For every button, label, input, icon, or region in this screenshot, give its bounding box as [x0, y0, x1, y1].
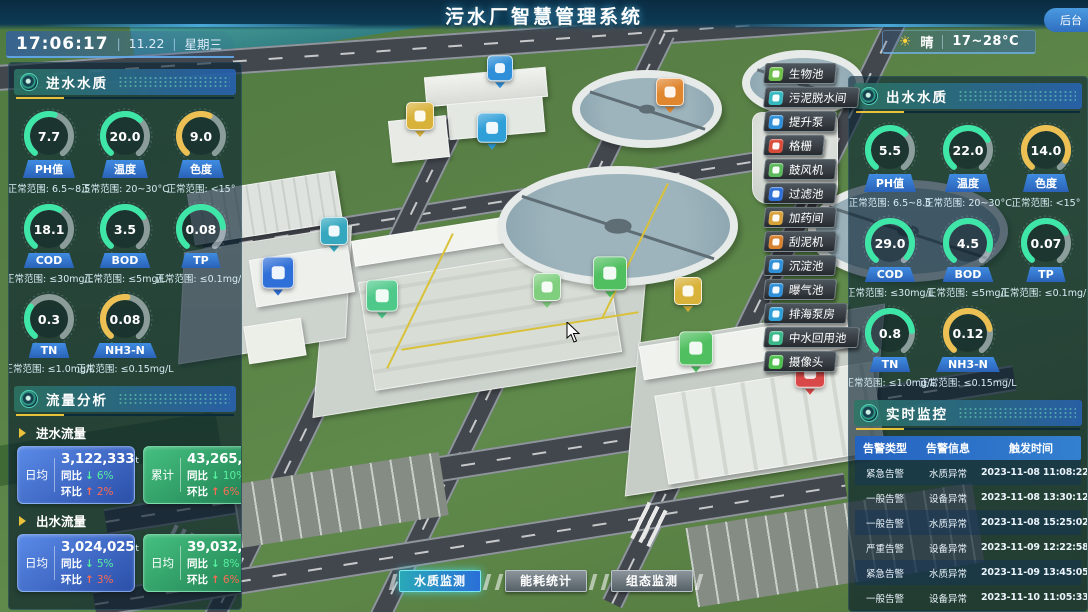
flow-card: 日均3,122,333t同比↓6%环比↑2% [17, 446, 135, 504]
gauge-range: 正常范围: <15° [1011, 195, 1080, 209]
lift-pump-marker[interactable] [477, 113, 507, 155]
flow-card-tag: 日均 [151, 555, 174, 571]
outlet-gauges: 5.5PH值正常范围: 6.5~8.522.0温度正常范围: 20~30°C14… [849, 113, 1087, 394]
flow-delta-row: 同比↓5% [61, 556, 127, 571]
facility-label: 污泥脱水间 [788, 90, 847, 106]
facility-button-lift-pump[interactable]: 提升泵 [763, 111, 837, 132]
alarm-time: 2023-11-08 11:08:22 [981, 467, 1088, 478]
gauge-range: 正常范围: ≤30mg/L [8, 271, 93, 285]
gauge-dial: 4.5 [939, 214, 997, 272]
marker-pointer [665, 107, 675, 118]
gauge-nh3n: 0.08NH3-N正常范围: ≤0.15mg/L [87, 290, 163, 375]
flow-card: 日均3,024,025t同比↓5%环比↑3% [17, 534, 135, 592]
col-trigger-time: 触发时间 [981, 440, 1081, 456]
gauge-value: 0.08 [96, 290, 154, 348]
gauge-value: 0.3 [20, 290, 78, 348]
gauge-label: TP [1026, 267, 1066, 282]
mud-scraper-icon [768, 235, 783, 249]
delta-label: 环比 [187, 572, 208, 587]
gauge-value: 0.08 [172, 200, 230, 258]
facility-button-bio-pool[interactable]: 生物池 [763, 63, 837, 84]
facility-button-camera[interactable]: 摄像头 [763, 351, 837, 372]
flow-delta-row: 同比↓10% [187, 468, 242, 483]
gauge-dial: 0.3 [20, 290, 78, 348]
gauge-label: PH值 [23, 160, 75, 178]
alarm-type: 紧急告警 [855, 466, 915, 480]
facility-label: 鼓风机 [788, 162, 824, 178]
alarm-type: 紧急告警 [855, 566, 915, 580]
gauge-label: TN [870, 357, 911, 372]
delta-value: 2% [97, 486, 114, 498]
flow-delta-row: 环比↑3% [61, 572, 127, 587]
marker-icon [533, 273, 561, 301]
bottom-tabs: 水质监测能耗统计组态监测 [399, 570, 693, 592]
flow-delta-row: 环比↑2% [61, 484, 127, 499]
arrow-down-icon: ↓ [211, 558, 220, 570]
blower-marker[interactable] [406, 102, 434, 142]
arrow-down-icon: ↓ [85, 558, 94, 570]
marker-icon [477, 113, 507, 143]
marker-pointer [415, 131, 425, 142]
gauge-range: 正常范围: ≤5mg/L [84, 271, 166, 285]
target-icon [860, 87, 878, 105]
gauge-label: 色度 [1023, 174, 1069, 192]
arrow-up-icon: ↑ [211, 486, 220, 498]
alarm-info: 设备异常 [915, 591, 981, 605]
gauge-ph: 5.5PH值正常范围: 6.5~8.5 [851, 121, 929, 209]
divider [180, 546, 181, 580]
section-title: 进水水质 [46, 72, 108, 92]
page-title: 污水厂智慧管理系统 [445, 2, 643, 29]
target-icon [20, 73, 38, 91]
bio-pool-icon [768, 67, 783, 81]
weekday-text: 星期三 [184, 34, 222, 53]
section-header: 进水水质 [14, 69, 236, 95]
sun-icon: ☀ [899, 34, 912, 50]
flow-value: 3,122,333t [61, 451, 127, 467]
delta-label: 环比 [61, 572, 82, 587]
delta-label: 同比 [61, 468, 82, 483]
gauge-label: 色度 [178, 160, 224, 178]
dashboard: 污水厂智慧管理系统 17:06:17 | 11.22 | 星期三 ☀ 晴 17~… [0, 0, 1088, 612]
target-icon [20, 390, 38, 408]
marker-pointer [805, 389, 815, 400]
dots-decoration [118, 393, 230, 405]
mud-scraper-marker[interactable] [656, 78, 684, 118]
marker-pointer [377, 313, 387, 324]
gauge-label: COD [24, 253, 75, 268]
flow-card-values: 3,122,333t同比↓6%环比↑2% [61, 451, 127, 499]
facility-button-sedimentation-pool[interactable]: 沉淀池 [763, 255, 837, 276]
facility-label: 加药间 [788, 210, 824, 226]
gauge-temp: 20.0温度正常范围: 20~30°C [87, 107, 163, 195]
gauge-range: 正常范围: 6.5~8.5 [8, 181, 90, 195]
left-panel: 进水水质 7.7PH值正常范围: 6.5~8.520.0温度正常范围: 20~3… [8, 62, 242, 610]
marker-pointer [683, 306, 693, 317]
gauge-value: 4.5 [939, 214, 997, 272]
gauge-range: 正常范围: 20~30°C [81, 181, 169, 195]
facility-button-aeration-pool[interactable]: 曝气池 [763, 279, 837, 300]
gauge-bod: 4.5BOD正常范围: ≤5mg/L [929, 214, 1007, 299]
alarm-table: 告警类型 告警信息 触发时间 紧急告警水质异常2023-11-08 11:08:… [855, 436, 1081, 612]
marker-pointer [487, 144, 497, 155]
flow-card: 日均39,032,128t同比↓8%环比↑6% [143, 534, 242, 592]
gauge-tp: 0.08TP正常范围: ≤0.1mg/L [163, 200, 239, 285]
underline [16, 97, 234, 99]
section-title: 流量分析 [46, 389, 108, 409]
facility-label: 提升泵 [788, 114, 824, 130]
filter-pool-icon [768, 187, 783, 201]
gauge-dial: 7.7 [20, 107, 78, 165]
gauge-label: NH3-N [93, 343, 157, 358]
gauge-range: 正常范围: ≤0.1mg/L [155, 271, 242, 285]
delta-value: 6% [97, 470, 114, 482]
section-header: 实时监控 [854, 400, 1082, 426]
gauge-dial: 3.5 [96, 200, 154, 258]
divider [54, 458, 55, 492]
col-alarm-info: 告警信息 [915, 440, 981, 456]
tab-energy-statistics[interactable]: 能耗统计 [505, 570, 587, 592]
reclaimed-water-pool-icon [768, 331, 783, 345]
alarm-type: 一般告警 [855, 516, 915, 530]
flow-card-values: 3,024,025t同比↓5%环比↑3% [61, 539, 127, 587]
gauge-label: 温度 [102, 160, 148, 178]
alarm-row: 紧急告警水质异常2023-11-09 13:45:05 [855, 560, 1081, 585]
gauge-temp: 22.0温度正常范围: 20~30°C [929, 121, 1007, 209]
flow-card-tag: 累计 [151, 467, 174, 483]
gauge-tp: 0.07TP正常范围: ≤0.1mg/L [1007, 214, 1085, 299]
camera-marker-1[interactable] [593, 256, 627, 302]
flow-card-values: 43,265,225t同比↓10%环比↑6% [187, 451, 242, 499]
alarm-info: 设备异常 [915, 491, 981, 505]
gauge-label: NH3-N [936, 357, 1000, 372]
facility-button-filter-pool[interactable]: 过滤池 [763, 183, 837, 204]
gauge-dial: 0.08 [96, 290, 154, 348]
flow-value: 43,265,225t [187, 451, 242, 467]
facility-button-dosing-room[interactable]: 加药间 [763, 207, 837, 228]
flow-group-label: 出水流量 [19, 511, 231, 530]
blower-icon [768, 163, 783, 177]
gauge-label: PH值 [864, 174, 916, 192]
gauge-dial: 0.07 [1017, 214, 1075, 272]
marker-pointer [329, 246, 339, 257]
sea-discharge-pump-house-icon [768, 307, 783, 321]
flow-unit: t [135, 456, 138, 466]
tab-water-quality-monitoring[interactable]: 水质监测 [399, 570, 481, 592]
facility-button-sludge-dewatering-room[interactable]: 污泥脱水间 [763, 87, 860, 108]
marker-pointer [605, 291, 615, 302]
marker-icon [366, 280, 398, 312]
facility-label: 格栅 [788, 138, 813, 154]
flow-card-tag: 日均 [25, 467, 48, 483]
section-title: 实时监控 [886, 403, 948, 423]
facility-label: 曝气池 [788, 282, 824, 298]
gauge-label: TP [181, 253, 221, 268]
sedimentation-pool-icon [768, 259, 783, 273]
gauge-label: BOD [100, 253, 151, 268]
delta-label: 同比 [187, 556, 208, 571]
gauge-dial: 22.0 [939, 121, 997, 179]
arrow-down-icon: ↓ [85, 470, 94, 482]
marker-icon [320, 217, 348, 245]
flow-groups: 进水流量日均3,122,333t同比↓6%环比↑2%累计43,265,225t同… [9, 423, 241, 592]
delta-label: 同比 [187, 468, 208, 483]
gauge-value: 0.12 [939, 304, 997, 362]
flow-delta-row: 环比↑6% [187, 484, 242, 499]
flow-card: 累计43,265,225t同比↓10%环比↑6% [143, 446, 242, 504]
marker-pointer [691, 366, 701, 377]
dosing-room-icon [768, 211, 783, 225]
facility-button-panel: 生物池污泥脱水间提升泵格栅鼓风机过滤池加药间刮泥机沉淀池曝气池排海泵房中水回用池… [764, 63, 859, 372]
gauge-dial: 0.12 [939, 304, 997, 362]
separator: | [117, 37, 121, 51]
gauge-label: TN [29, 343, 70, 358]
alarm-row: 紧急告警水质异常2023-11-08 11:08:22 [855, 460, 1081, 485]
alarm-row: 一般告警设备异常2023-11-08 13:30:12 [855, 485, 1081, 510]
gauge-range: 正常范围: <15° [166, 181, 235, 195]
flow-group-label: 进水流量 [19, 423, 231, 442]
section-title: 出水水质 [886, 86, 948, 106]
delta-value: 10% [223, 470, 242, 482]
alarm-table-header: 告警类型 告警信息 触发时间 [855, 436, 1081, 460]
delta-value: 5% [97, 558, 114, 570]
underline [856, 111, 1080, 113]
section-outlet-quality: 出水水质 [854, 83, 1082, 113]
gauge-dial: 5.5 [861, 121, 919, 179]
marker-icon [674, 277, 702, 305]
divider [942, 35, 943, 49]
marker-pointer [495, 82, 505, 93]
gauge-value: 29.0 [861, 214, 919, 272]
flow-card-tag: 日均 [25, 555, 48, 571]
marker-icon [262, 257, 294, 289]
flow-group-label-text: 出水流量 [36, 511, 86, 530]
alarm-time: 2023-11-08 15:25:02 [981, 517, 1088, 528]
facility-label: 排海泵房 [788, 306, 836, 322]
gauge-label: COD [865, 267, 916, 282]
delta-label: 环比 [61, 484, 82, 499]
underline [856, 428, 1080, 430]
gauge-range: 正常范围: ≤0.15mg/L [919, 375, 1016, 389]
marker-icon [656, 78, 684, 106]
alarm-info: 水质异常 [915, 566, 981, 580]
reclaimed-water-marker[interactable] [366, 280, 398, 324]
flow-value: 39,032,128t [187, 539, 242, 555]
gauge-range: 正常范围: ≤0.15mg/L [76, 361, 173, 375]
facility-button-grille[interactable]: 格栅 [763, 135, 825, 156]
backend-button[interactable]: 后台 [1044, 8, 1088, 32]
alarm-time: 2023-11-09 13:45:05 [981, 567, 1088, 578]
grille-icon [768, 139, 783, 153]
gauge-ph: 7.7PH值正常范围: 6.5~8.5 [11, 107, 87, 195]
triangle-icon [19, 516, 31, 526]
section-inlet-quality: 进水水质 [14, 69, 236, 99]
facility-button-sea-discharge-pump-house[interactable]: 排海泵房 [763, 303, 848, 324]
marker-icon [593, 256, 627, 290]
facility-label: 沉淀池 [788, 258, 824, 274]
sludge-dewatering-marker[interactable] [320, 217, 348, 257]
marker-icon [487, 55, 513, 81]
app-header: 污水厂智慧管理系统 [0, 0, 1088, 30]
triangle-icon [19, 428, 31, 438]
dots-decoration [958, 90, 1076, 102]
blower-marker-2[interactable] [674, 277, 702, 317]
divider [54, 546, 55, 580]
camera-marker-2[interactable] [679, 331, 713, 377]
gauge-label: BOD [943, 267, 994, 282]
gauge-dial: 29.0 [861, 214, 919, 272]
gauge-chroma: 9.0色度正常范围: <15° [163, 107, 239, 195]
flow-delta-row: 同比↓8% [187, 556, 242, 571]
gauge-value: 20.0 [96, 107, 154, 165]
gauge-dial: 18.1 [20, 200, 78, 258]
gauge-range: 正常范围: 20~30°C [924, 195, 1012, 209]
section-flow-analysis: 流量分析 [14, 386, 236, 416]
alarm-time: 2023-11-09 12:22:58 [981, 542, 1088, 553]
time-text: 17:06:17 [16, 34, 109, 54]
tab-configuration-monitoring[interactable]: 组态监测 [611, 570, 693, 592]
clock-widget: 17:06:17 | 11.22 | 星期三 [6, 31, 234, 58]
gauge-range: 正常范围: 6.5~8.5 [849, 195, 931, 209]
facility-label: 生物池 [788, 66, 824, 82]
alarm-info: 设备异常 [915, 541, 981, 555]
weather-widget: ☀ 晴 17~28°C [882, 30, 1036, 54]
gauge-value: 14.0 [1017, 121, 1075, 179]
gauge-value: 0.8 [861, 304, 919, 362]
gauge-cod: 18.1COD正常范围: ≤30mg/L [11, 200, 87, 285]
gauge-dial: 0.08 [172, 200, 230, 258]
alarm-info: 水质异常 [915, 466, 981, 480]
inlet-gauges: 7.7PH值正常范围: 6.5~8.520.0温度正常范围: 20~30°C9.… [9, 99, 241, 380]
arrow-up-icon: ↑ [85, 486, 94, 498]
sludge-dewatering-room-icon [768, 91, 783, 105]
section-header: 出水水质 [854, 83, 1082, 109]
dots-decoration [958, 407, 1076, 419]
temperature-range: 17~28°C [952, 34, 1019, 49]
gauge-dial: 0.8 [861, 304, 919, 362]
gauge-value: 7.7 [20, 107, 78, 165]
facility-button-mud-scraper[interactable]: 刮泥机 [763, 231, 837, 252]
gauge-value: 22.0 [939, 121, 997, 179]
flow-cards: 日均3,024,025t同比↓5%环比↑3%日均39,032,128t同比↓8%… [9, 534, 241, 592]
gauge-tn: 0.8TN正常范围: ≤1.0mg/L [851, 304, 929, 389]
gauge-range: 正常范围: ≤0.1mg/L [1000, 285, 1088, 299]
flow-value: 3,024,025t [61, 539, 127, 555]
weather-condition: 晴 [920, 32, 933, 51]
marker-pointer [542, 302, 552, 313]
gauge-label: 温度 [945, 174, 991, 192]
delta-value: 6% [223, 574, 240, 586]
alarm-row: 一般告警设备异常2023-11-10 11:05:33 [855, 585, 1081, 610]
gauge-dial: 9.0 [172, 107, 230, 165]
flow-delta-row: 同比↓6% [61, 468, 127, 483]
marker-pointer [273, 290, 283, 301]
target-icon [860, 404, 878, 422]
delta-label: 环比 [187, 484, 208, 499]
bio-pool-marker[interactable] [533, 273, 561, 313]
alarm-row: 一般告警水质异常2023-11-08 15:25:02 [855, 510, 1081, 535]
alarm-type: 一般告警 [855, 491, 915, 505]
gauge-dial: 14.0 [1017, 121, 1075, 179]
arrow-down-icon: ↓ [211, 470, 220, 482]
filter-pool-marker[interactable] [262, 257, 294, 301]
flow-cards: 日均3,122,333t同比↓6%环比↑2%累计43,265,225t同比↓10… [9, 446, 241, 504]
alarm-row: 严重告警设备异常2023-11-09 12:22:58 [855, 535, 1081, 560]
gauge-chroma: 14.0色度正常范围: <15° [1007, 121, 1085, 209]
gauge-dial: 20.0 [96, 107, 154, 165]
date-text: 11.22 [129, 36, 165, 51]
gauge-range: 正常范围: ≤30mg/L [848, 285, 934, 299]
delta-value: 8% [223, 558, 240, 570]
lift-pump-icon [768, 115, 783, 129]
marker-icon [406, 102, 434, 130]
flow-card-values: 39,032,128t同比↓8%环比↑6% [187, 539, 242, 587]
gauge-value: 0.07 [1017, 214, 1075, 272]
alarm-time: 2023-11-10 11:05:33 [981, 592, 1088, 603]
gauge-value: 3.5 [96, 200, 154, 258]
mouse-cursor [566, 322, 582, 344]
gauge-value: 9.0 [172, 107, 230, 165]
gauge-value: 18.1 [20, 200, 78, 258]
alarm-type: 严重告警 [855, 541, 915, 555]
gauge-bod: 3.5BOD正常范围: ≤5mg/L [87, 200, 163, 285]
flow-group-label-text: 进水流量 [36, 423, 86, 442]
gauge-value: 5.5 [861, 121, 919, 179]
delta-value: 6% [223, 486, 240, 498]
right-panel: 出水水质 5.5PH值正常范围: 6.5~8.522.0温度正常范围: 20~3… [848, 76, 1088, 612]
camera-icon [768, 355, 783, 369]
facility-label: 摄像头 [788, 354, 824, 370]
arrow-up-icon: ↑ [85, 574, 94, 586]
divider [180, 458, 181, 492]
section-header: 流量分析 [14, 386, 236, 412]
flow-delta-row: 环比↑6% [187, 572, 242, 587]
facility-label: 中水回用池 [788, 330, 847, 346]
gauge-cod: 29.0COD正常范围: ≤30mg/L [851, 214, 929, 299]
facility-button-reclaimed-water-pool[interactable]: 中水回用池 [763, 327, 860, 348]
arrow-up-icon: ↑ [211, 574, 220, 586]
gauge-nh3n: 0.12NH3-N正常范围: ≤0.15mg/L [929, 304, 1007, 389]
aeration-pool-marker[interactable] [487, 55, 513, 93]
underline [16, 414, 234, 416]
delta-value: 3% [97, 574, 114, 586]
delta-label: 同比 [61, 556, 82, 571]
facility-button-blower[interactable]: 鼓风机 [763, 159, 837, 180]
aeration-pool-icon [768, 283, 783, 297]
separator: | [172, 37, 176, 51]
marker-icon [679, 331, 713, 365]
alarm-time: 2023-11-08 13:30:12 [981, 492, 1088, 503]
col-alarm-type: 告警类型 [855, 440, 915, 456]
facility-label: 刮泥机 [788, 234, 824, 250]
dots-decoration [118, 76, 230, 88]
flow-unit: t [135, 544, 138, 554]
alarm-type: 一般告警 [855, 591, 915, 605]
alarm-rows: 紧急告警水质异常2023-11-08 11:08:22一般告警设备异常2023-… [855, 460, 1081, 612]
gauge-range: 正常范围: ≤5mg/L [927, 285, 1009, 299]
alarm-info: 水质异常 [915, 516, 981, 530]
facility-label: 过滤池 [788, 186, 824, 202]
section-monitoring: 实时监控 [854, 400, 1082, 430]
